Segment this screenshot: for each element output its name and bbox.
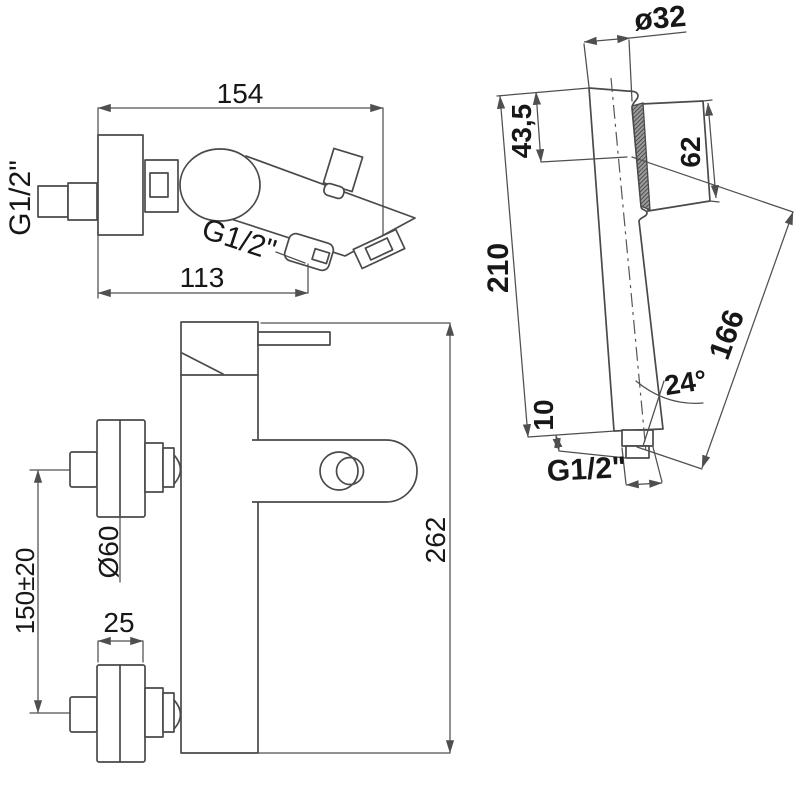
dim-label-total-length: 210 — [482, 243, 515, 293]
dimension-line-thread — [626, 483, 662, 485]
inlet-pipe-bottom — [70, 697, 97, 732]
wall-flange — [98, 135, 143, 235]
extension-line-top-plane — [497, 88, 589, 96]
dim-label-head-diameter: ø32 — [633, 0, 687, 37]
hand-shower-view: ø32 43,5 62 210 10 G1/2" 24° 166 — [482, 0, 793, 488]
hose-connector — [622, 430, 653, 446]
hose-bracket — [252, 440, 417, 502]
technical-drawing: 154 G1/2" G1/2" — [0, 0, 800, 800]
dim-label-113: 113 — [180, 262, 225, 293]
technical-drawing-page: 154 G1/2" G1/2" — [0, 0, 800, 800]
dim-label-262: 262 — [420, 517, 451, 564]
side-view: 154 G1/2" G1/2" — [4, 78, 415, 298]
escutcheon-top — [97, 420, 145, 517]
inlet-pipe-top — [70, 452, 97, 487]
dimension-line-10 — [556, 435, 559, 451]
dim-label-154: 154 — [217, 78, 264, 109]
inlet-pipe-nut — [38, 186, 68, 217]
extension-lines-25 — [98, 641, 143, 662]
escutcheon-bottom — [97, 665, 145, 762]
mixer-body-front — [181, 322, 258, 753]
thread-label: G1/2" — [546, 451, 627, 488]
lever-handle-front — [258, 332, 330, 345]
inlet-pipe — [68, 183, 97, 220]
dim-label-inlet-spacing: 150±20 — [10, 548, 40, 635]
dim-label-connector-length: 10 — [528, 399, 559, 430]
connector-bottom-collar — [163, 693, 174, 732]
connector-bottom — [145, 688, 163, 737]
extension-line-bottom-plane — [528, 431, 615, 437]
dim-label-spray-angle: 24° — [662, 364, 709, 401]
connector-top-collar — [163, 448, 174, 487]
front-view: 262 Ø60 150±20 25 — [10, 322, 451, 762]
connector-bottom-bump — [174, 700, 181, 729]
connector-top — [145, 443, 163, 492]
dim-label-25: 25 — [103, 607, 134, 638]
inlet-thread-label: G1/2" — [4, 160, 37, 236]
dimension-line-32 — [584, 38, 630, 42]
connector-top-bump — [174, 455, 181, 484]
ball-joint — [180, 149, 260, 221]
dim-label-face-length: 166 — [703, 306, 751, 364]
dim-label-escutcheon-diameter: Ø60 — [93, 526, 124, 579]
dim-label-head-width: 62 — [675, 136, 706, 167]
valve-detail — [150, 173, 168, 197]
dim-label-head-depth: 43,5 — [506, 104, 537, 159]
